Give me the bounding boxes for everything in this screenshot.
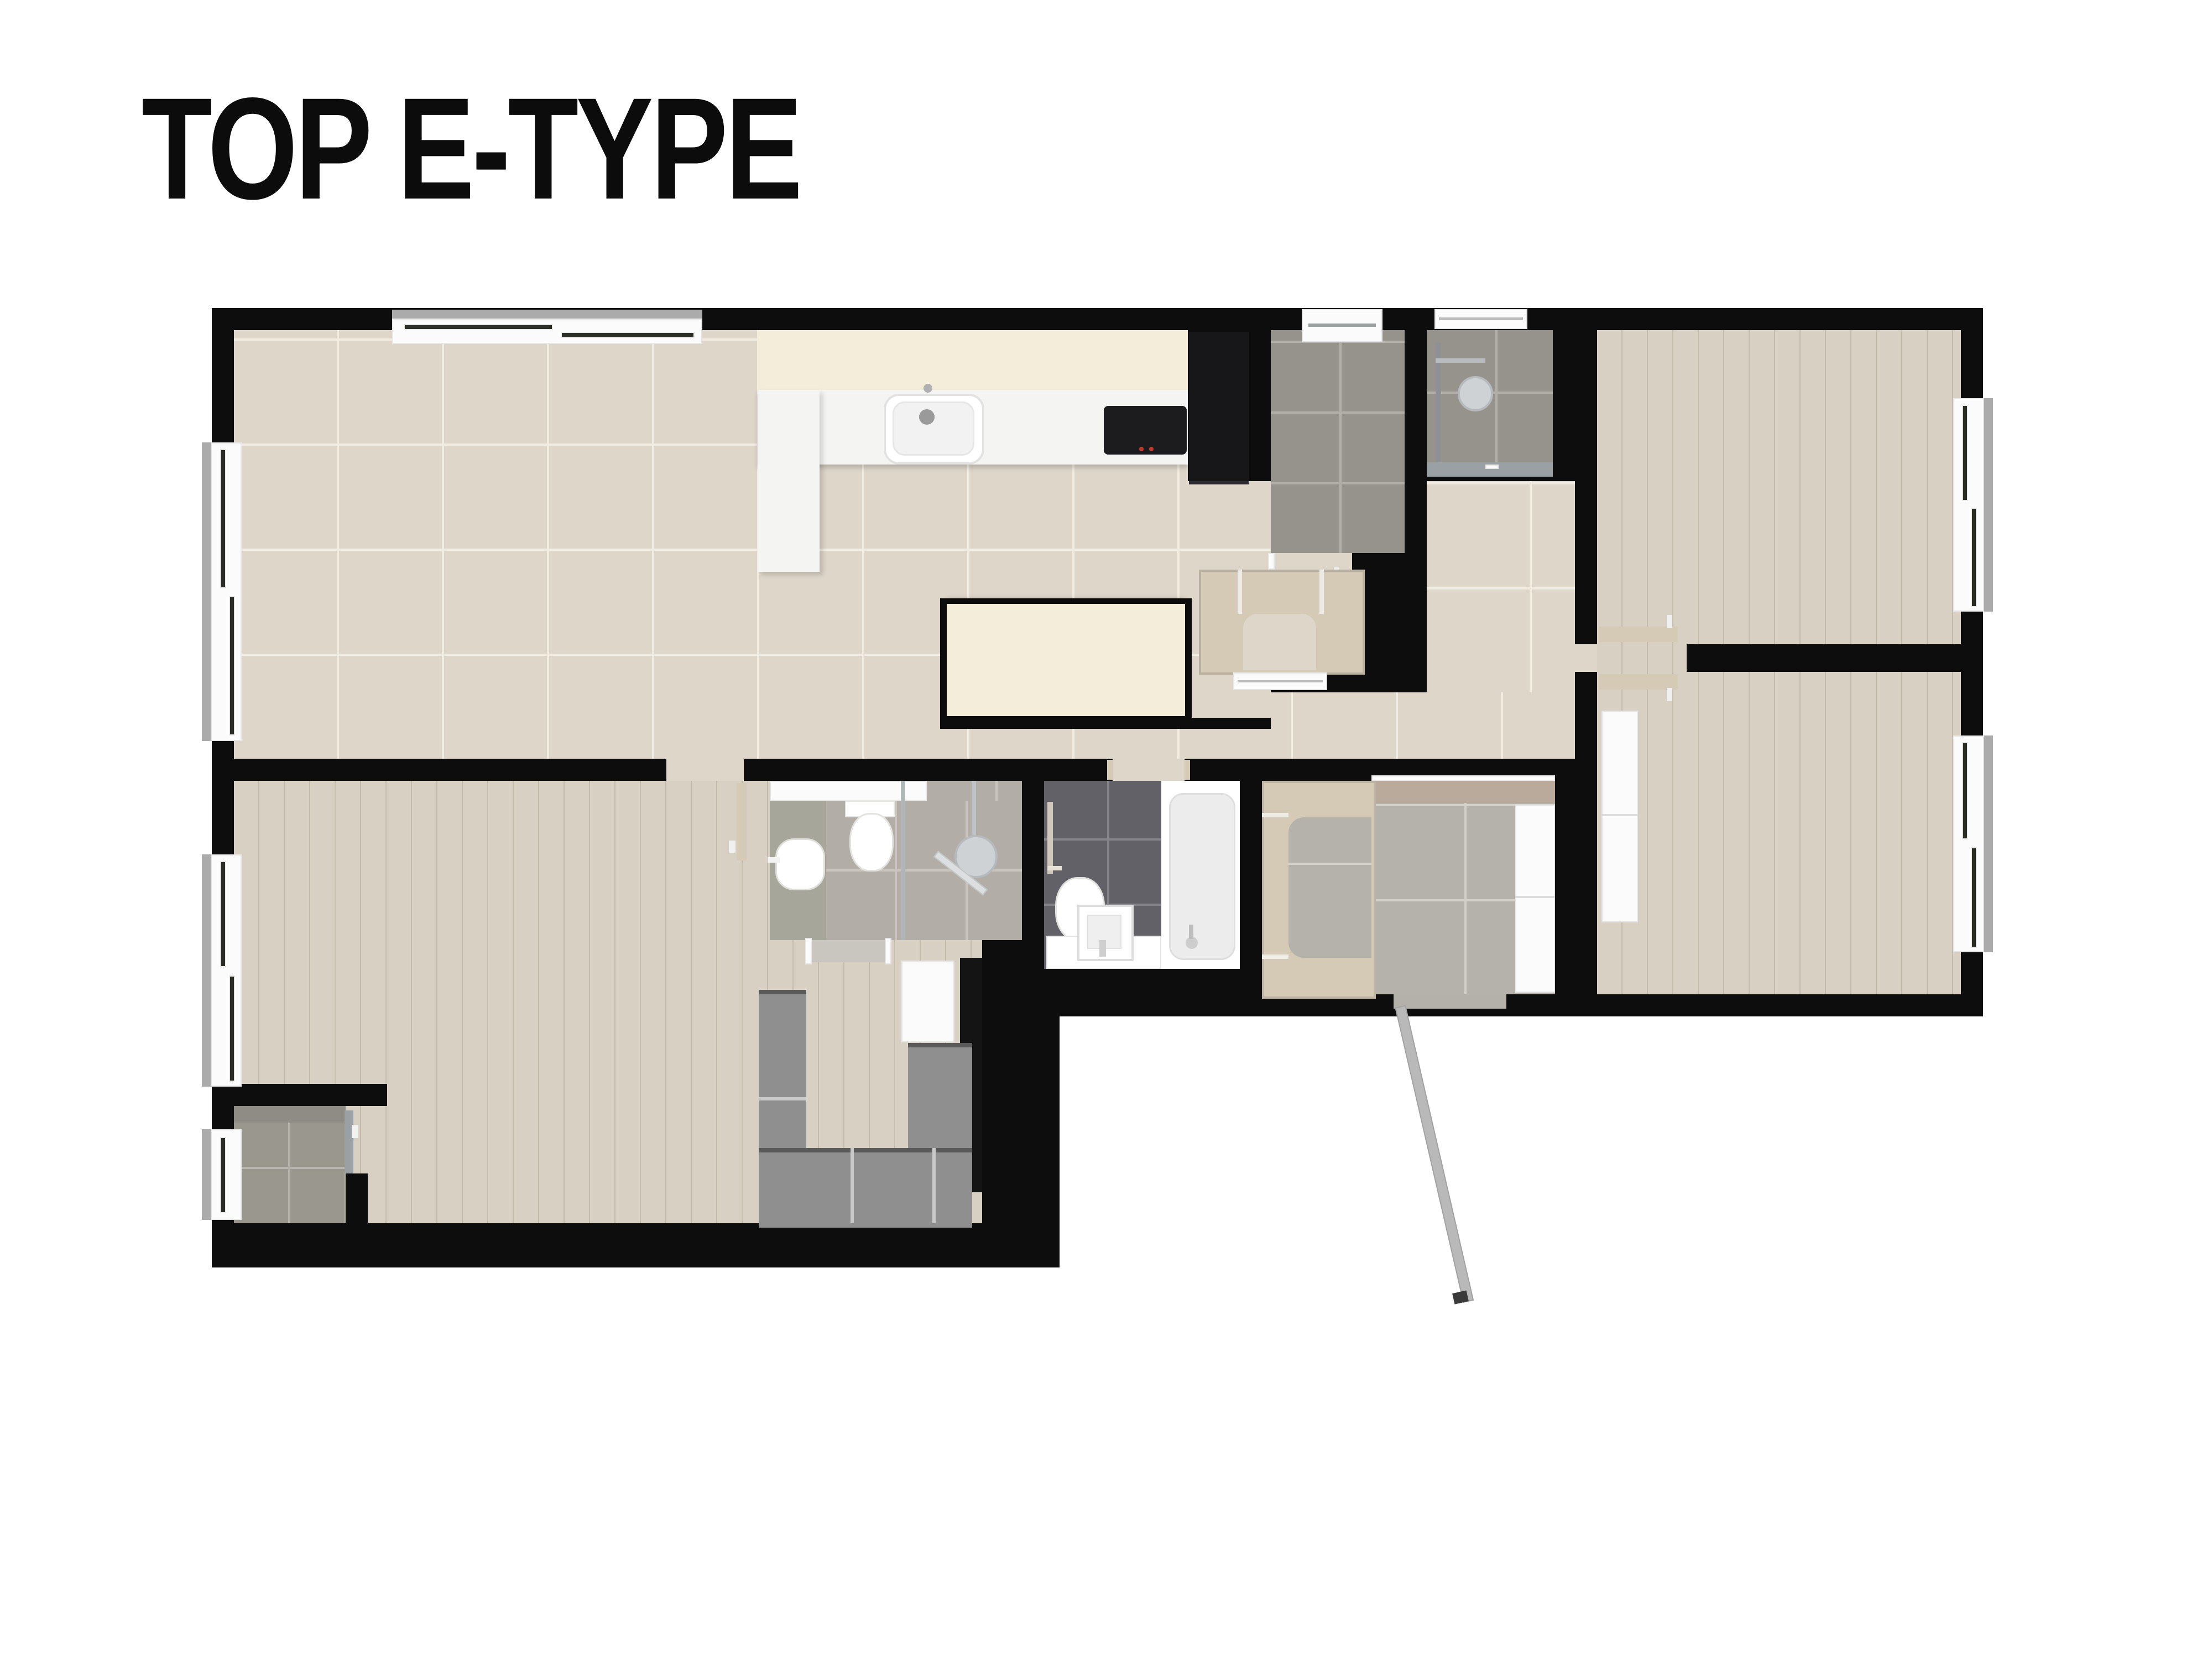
bedroom1-door-handle — [1667, 615, 1672, 628]
bedroom2-door-handle — [1667, 688, 1672, 701]
walkin-wardrobe-left-divider — [759, 1097, 806, 1100]
kitchen-upper-cabinets — [758, 330, 1188, 390]
entry-closet-shelf-tick2 — [1262, 954, 1288, 959]
hallway-doorway-gap — [1575, 644, 1597, 672]
family-bath-door-opening — [1113, 759, 1185, 781]
bedroom2-window-sill — [1984, 735, 1993, 952]
ensuite-door-jamb-left — [805, 938, 812, 964]
master-window — [211, 854, 242, 1087]
towel-bar — [1047, 802, 1053, 874]
utility-room-floor — [1271, 330, 1405, 553]
bedroom1-door-leaf — [1599, 627, 1678, 642]
shower-head — [1458, 376, 1493, 411]
bedroom2-wardrobe — [1601, 711, 1638, 922]
washer-unit-line — [1308, 324, 1376, 327]
entry-shoe-cabinet — [1515, 805, 1555, 993]
hallway-floor-east — [1427, 481, 1575, 692]
bedroom2-window-glass2 — [1971, 847, 1977, 948]
ensuite-faucet — [768, 857, 780, 863]
bedroom2-window-glass — [1962, 742, 1968, 839]
kitchen-window — [392, 319, 702, 344]
balcony-door-handle — [352, 1125, 358, 1138]
ensuite-door-jamb-right — [885, 938, 891, 964]
shower-arm — [1436, 358, 1485, 363]
master-window-sill — [202, 854, 211, 1087]
page-title: TOP E-TYPE — [142, 65, 800, 232]
balcony-glass-door — [345, 1110, 353, 1173]
balcony-floor — [234, 1106, 346, 1223]
entry-shoe-closet-floor — [1288, 817, 1371, 958]
ensuite-door-threshold — [812, 940, 885, 962]
balcony-step — [234, 1106, 346, 1123]
entry-cabinet-divider — [1515, 896, 1555, 898]
walkin-wardrobe-right — [908, 1043, 972, 1152]
master-door-leaf — [737, 783, 747, 860]
bedroom2-window — [1953, 735, 1984, 952]
master-door-opening — [666, 759, 744, 781]
bedroom2-door-leaf — [1599, 674, 1678, 690]
utility-door-jamb — [1268, 553, 1275, 570]
bedroom1-window-glass — [1962, 405, 1968, 501]
floor-plan-page: TOP E-TYPE — [0, 0, 2212, 1659]
balcony-wall — [234, 1084, 387, 1106]
towel-hook — [1047, 866, 1062, 870]
utility-door-opening — [1275, 553, 1352, 570]
cooktop — [1104, 406, 1187, 455]
bedroom1-window-sill — [1984, 398, 1993, 612]
living-window-glass2 — [229, 596, 235, 735]
living-window — [211, 442, 242, 741]
pantry-sliding-door-track — [1238, 680, 1323, 682]
bedrooms-doorway-zone — [1597, 644, 1687, 672]
pantry-inner-floor — [1243, 614, 1316, 670]
island-half-wall — [1185, 718, 1271, 729]
bedroom2-wardrobe-divider — [1601, 814, 1638, 816]
bedroom-top-right-floor — [1597, 330, 1961, 644]
bathtub-basin — [1169, 793, 1235, 960]
living-window-sill — [202, 442, 211, 741]
pantry-divider2 — [1319, 570, 1324, 614]
walkin-cabinet — [901, 961, 954, 1042]
balcony-window-glass — [220, 1137, 226, 1213]
walkin-wardrobe-bottom-divider2 — [932, 1148, 936, 1223]
kitchen-counter-arm — [758, 390, 820, 572]
kitchen-island — [947, 604, 1185, 716]
family-bath-door-jamb-left — [1107, 760, 1113, 780]
bedroom1-window-glass2 — [1971, 508, 1977, 607]
kitchen-sink-basin — [893, 401, 974, 456]
kitchen-drain — [919, 409, 935, 425]
entry-closet-shelf-tick — [1262, 813, 1288, 817]
walkin-wardrobe-bottom — [759, 1148, 972, 1228]
refrigerator — [1189, 332, 1249, 484]
bedroom-bottom-right-floor — [1597, 672, 1961, 994]
family-bath-door-jamb-right — [1185, 760, 1190, 780]
master-window-glass — [220, 861, 226, 967]
ensuite-sink — [775, 838, 825, 890]
bedroom1-window — [1953, 398, 1984, 612]
entry-door-knob — [1452, 1290, 1469, 1304]
cooktop-knob2 — [1149, 447, 1154, 451]
wet-room-glass-door-handle — [1485, 465, 1499, 469]
balcony-wall-stub — [346, 1173, 368, 1223]
wet-room-top-door-track — [1439, 317, 1523, 320]
balcony-window-sill — [202, 1129, 211, 1220]
entry-threshold — [1394, 994, 1506, 1009]
kitchen-faucet — [924, 384, 932, 393]
ensuite-toilet-bowl — [849, 813, 894, 872]
kitchen-window-glass — [404, 324, 553, 330]
ensuite-glass-partition — [901, 781, 905, 940]
entry-sliding-track — [1371, 775, 1555, 781]
kitchen-window-glass2 — [561, 332, 695, 338]
entry-door-mat — [1371, 781, 1555, 803]
tub-lever — [1189, 925, 1193, 939]
cooktop-knob — [1139, 447, 1144, 451]
master-door-handle — [729, 841, 735, 853]
walkin-wardrobe-bottom-divider — [851, 1148, 854, 1223]
pantry-divider — [1238, 570, 1242, 614]
living-window-glass — [220, 449, 226, 588]
kitchen-window-sill — [392, 310, 702, 319]
master-window-glass2 — [229, 975, 235, 1082]
family-sink-faucet — [1099, 940, 1106, 957]
entry-door-leaf — [1395, 1005, 1474, 1303]
balcony-window — [211, 1129, 242, 1220]
